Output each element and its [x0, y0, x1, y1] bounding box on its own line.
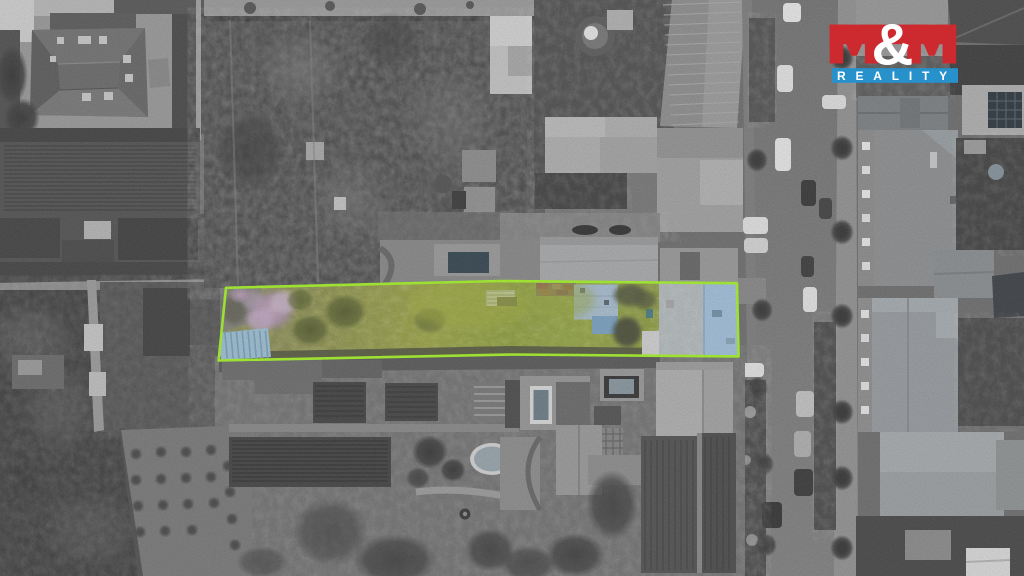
- svg-text:&: &: [872, 13, 914, 78]
- svg-text:REALITY: REALITY: [837, 69, 957, 83]
